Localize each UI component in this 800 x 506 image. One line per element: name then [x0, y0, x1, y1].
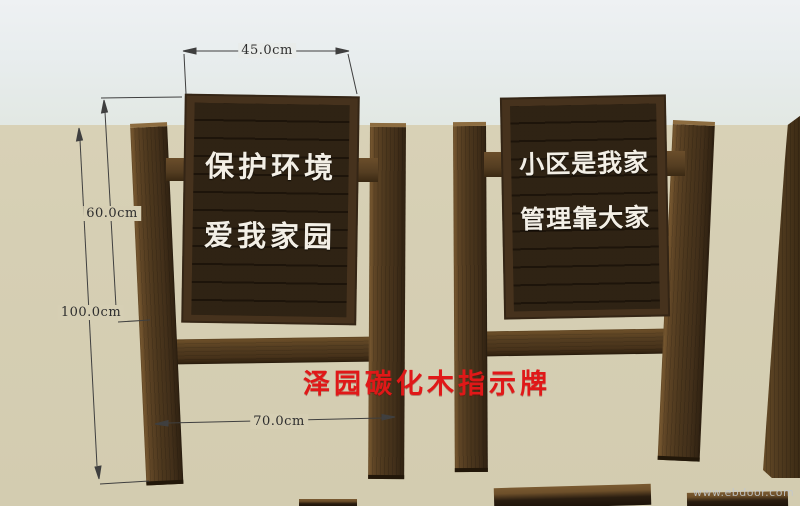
right-sign-left-post [453, 122, 488, 472]
left-sign-right-bracket [356, 158, 378, 182]
left-sign-board: 保护环境 爱我家园 [181, 94, 360, 326]
sky-background [0, 0, 800, 125]
right-sign-right-bracket [665, 151, 685, 176]
bottom-wood-piece-left [299, 499, 357, 506]
dim-label-post-height: 100.0cm [58, 305, 124, 320]
dim-label-post-spacing: 70.0cm [250, 414, 308, 429]
dim-label-board-width: 45.0cm [238, 43, 296, 58]
right-sign-text-line2: 管理靠大家 [502, 197, 669, 236]
left-sign-text-line2: 爱我家园 [182, 212, 358, 257]
watermark-text: www.ebdoor.com [693, 486, 794, 499]
product-title-annotation: 泽园碳化木指示牌 [303, 362, 551, 401]
right-sign-board: 小区是我家 管理靠大家 [500, 94, 670, 319]
bottom-wood-piece-center [494, 484, 652, 506]
right-sign-text-line1: 小区是我家 [501, 142, 668, 181]
signage-render-scene: 保护环境 爱我家园 小区是我家 管理靠大家 [0, 0, 800, 506]
left-sign-cross-rail [168, 337, 380, 365]
dim-label-board-height: 60.0cm [83, 206, 141, 221]
left-sign-board-planks [191, 103, 349, 317]
left-sign-text-line1: 保护环境 [183, 143, 359, 188]
right-sign-cross-rail [482, 329, 670, 357]
